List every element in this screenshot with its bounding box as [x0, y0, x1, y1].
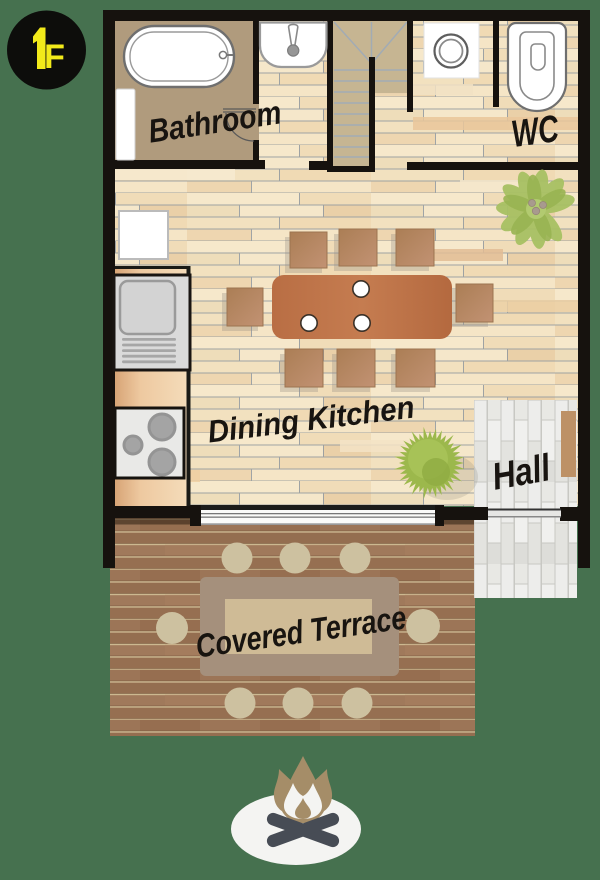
svg-text:F: F — [44, 38, 65, 76]
svg-text:WC: WC — [509, 108, 562, 156]
